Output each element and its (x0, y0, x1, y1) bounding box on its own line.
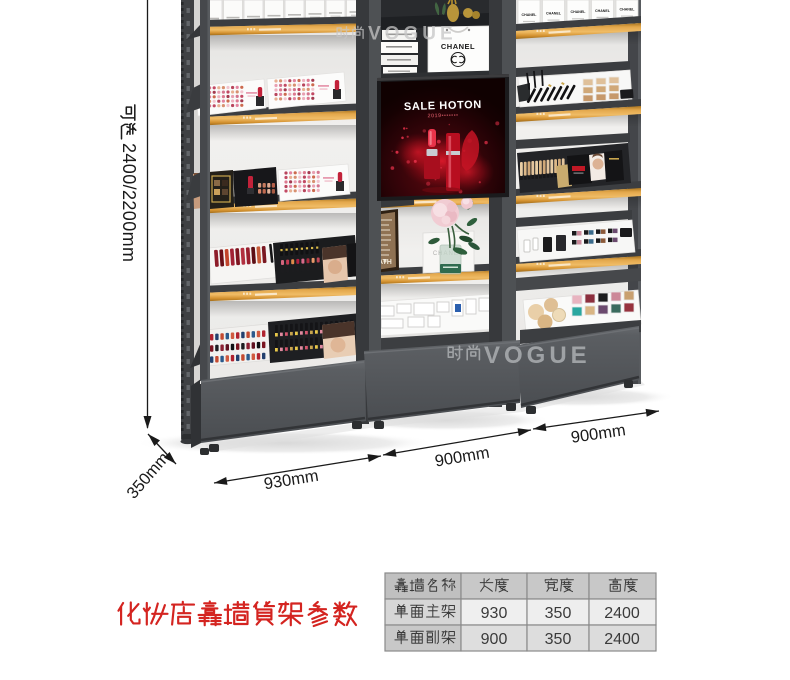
svg-text:930: 930 (481, 605, 508, 622)
svg-text:CHANEL: CHANEL (595, 9, 611, 13)
svg-text:CHANEL: CHANEL (571, 10, 587, 14)
svg-text:SALE HOTON: SALE HOTON (404, 99, 482, 113)
svg-text:900: 900 (481, 631, 508, 648)
svg-text:CHANEL: CHANEL (546, 12, 562, 16)
svg-text:CHANEL: CHANEL (522, 13, 538, 17)
svg-text:350: 350 (545, 631, 572, 648)
svg-text:2400: 2400 (604, 605, 640, 622)
svg-text:CHANEL: CHANEL (620, 8, 636, 12)
svg-text:VOGUE: VOGUE (368, 24, 457, 45)
svg-text:350: 350 (545, 605, 572, 622)
svg-text:VOGUE: VOGUE (484, 342, 591, 369)
svg-text:2400: 2400 (604, 631, 640, 648)
svg-text:2400/2200mm: 2400/2200mm (119, 143, 139, 262)
svg-text:2019▪▪▪▪▪▪▪: 2019▪▪▪▪▪▪▪ (428, 113, 459, 120)
